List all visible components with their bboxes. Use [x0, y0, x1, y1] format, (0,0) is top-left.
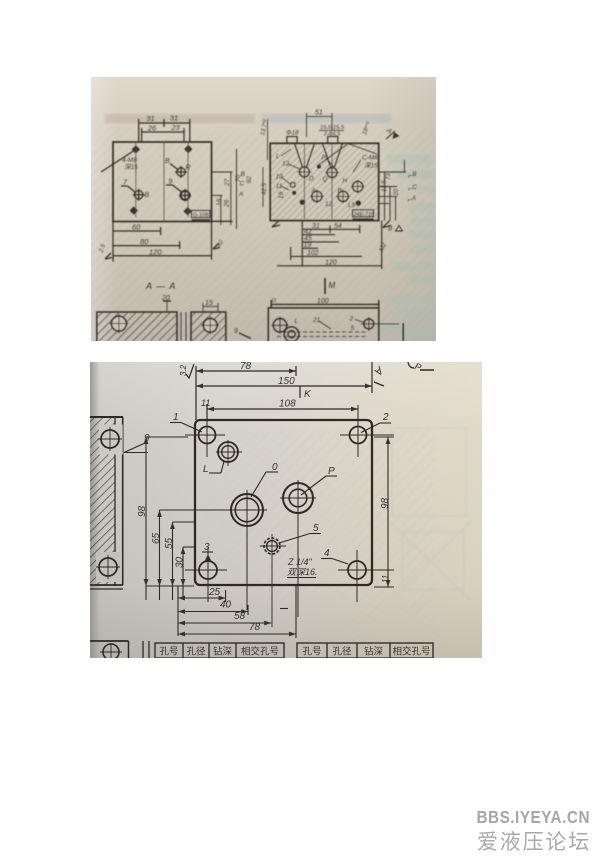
svg-text:31: 31 — [312, 223, 320, 230]
svg-text:51: 51 — [315, 110, 323, 117]
svg-text:73: 73 — [386, 173, 392, 180]
svg-text:B: B — [338, 188, 343, 195]
svg-text:92: 92 — [246, 176, 253, 184]
svg-text:0: 0 — [272, 462, 278, 473]
svg-text:58: 58 — [234, 611, 246, 622]
svg-text:钻深: 钻深 — [364, 646, 384, 658]
svg-text:Z 1/4": Z 1/4" — [287, 557, 313, 567]
svg-text:80: 80 — [140, 237, 149, 246]
svg-text:B: B — [241, 171, 246, 178]
svg-text:3: 3 — [204, 542, 210, 553]
svg-text:深15: 深15 — [124, 163, 138, 171]
svg-text:78: 78 — [249, 622, 261, 633]
svg-text:相交孔号: 相交孔号 — [392, 646, 430, 658]
svg-text:Φ18: Φ18 — [286, 130, 299, 137]
svg-text:21: 21 — [312, 317, 321, 324]
svg-text:L: L — [276, 153, 280, 160]
svg-text:108: 108 — [279, 399, 296, 410]
svg-text:9: 9 — [234, 328, 238, 335]
svg-text:4-M8: 4-M8 — [122, 157, 137, 164]
svg-text:55: 55 — [164, 537, 175, 549]
svg-text:65: 65 — [151, 532, 162, 544]
svg-text:P: P — [322, 155, 327, 162]
svg-text:102: 102 — [307, 250, 319, 257]
svg-text:25: 25 — [208, 587, 221, 598]
svg-text:H: H — [343, 177, 348, 184]
svg-text:20: 20 — [161, 295, 170, 302]
svg-text:15.5|15.5: 15.5|15.5 — [320, 125, 345, 131]
svg-text:M: M — [329, 281, 336, 290]
svg-text:2: 2 — [382, 412, 389, 423]
svg-text:12: 12 — [325, 201, 333, 208]
svg-text:P: P — [328, 466, 335, 477]
svg-text:4: 4 — [324, 548, 330, 559]
svg-text:11: 11 — [271, 298, 277, 304]
svg-text:1: 1 — [173, 412, 179, 423]
svg-text:26: 26 — [147, 124, 157, 133]
svg-text:A — A: A — A — [145, 281, 176, 291]
svg-text:2: 2 — [349, 315, 354, 322]
svg-text:26: 26 — [224, 199, 231, 208]
svg-text:11: 11 — [381, 575, 390, 583]
svg-text:相交孔号: 相交孔号 — [241, 646, 279, 658]
svg-text:150: 150 — [278, 376, 295, 387]
svg-text:120: 120 — [325, 259, 337, 266]
svg-text:27: 27 — [224, 178, 231, 187]
svg-text:R: R — [186, 165, 191, 172]
svg-text:L5: L5 — [348, 202, 356, 209]
svg-text:42: 42 — [304, 228, 312, 235]
svg-text:98: 98 — [137, 505, 148, 517]
svg-text:孔号: 孔号 — [302, 647, 321, 658]
svg-text:G-10B: G-10B — [193, 213, 209, 219]
svg-text:23: 23 — [170, 123, 180, 132]
svg-text:24E-710: 24E-710 — [353, 212, 376, 218]
svg-text:B: B — [388, 226, 393, 233]
svg-text:3.2: 3.2 — [179, 364, 188, 376]
svg-text:C: C — [240, 181, 245, 188]
svg-text:L: L — [203, 464, 209, 475]
svg-text:A: A — [238, 191, 243, 198]
svg-text:40: 40 — [220, 600, 232, 611]
svg-text:78: 78 — [240, 362, 252, 372]
svg-text:钻深: 钻深 — [213, 646, 233, 658]
svg-text:双深16.: 双深16. — [287, 567, 318, 577]
svg-text:D: D — [309, 175, 314, 182]
svg-text:9: 9 — [169, 179, 173, 186]
svg-text:120: 120 — [149, 247, 162, 256]
svg-text:L: L — [295, 318, 299, 325]
svg-text:98: 98 — [380, 497, 391, 509]
svg-text:19: 19 — [304, 242, 312, 249]
svg-text:60: 60 — [132, 223, 141, 232]
svg-text:20: 20 — [394, 188, 400, 196]
svg-text:19: 19 — [278, 191, 285, 199]
svg-text:5: 5 — [351, 325, 355, 332]
svg-text:5: 5 — [313, 523, 319, 534]
svg-text:孔号: 孔号 — [159, 647, 178, 658]
svg-text:100: 100 — [317, 298, 329, 305]
svg-text:42.5: 42.5 — [262, 183, 268, 195]
svg-text:Q: Q — [323, 176, 328, 183]
svg-text:16: 16 — [216, 198, 223, 206]
svg-text:A: A — [311, 188, 316, 195]
svg-text:孔径: 孔径 — [186, 646, 206, 658]
svg-text:2-Φ6.5: 2-Φ6.5 — [323, 132, 340, 138]
svg-text:13.5: 13.5 — [382, 180, 388, 192]
svg-text:C-M6: C-M6 — [362, 155, 378, 162]
svg-text:深15: 深15 — [364, 162, 378, 170]
svg-text:11: 11 — [201, 398, 210, 408]
svg-text:B: B — [145, 192, 150, 199]
svg-text:30: 30 — [175, 556, 186, 568]
svg-text:54: 54 — [334, 223, 342, 230]
svg-text:B: B — [165, 158, 170, 165]
svg-text:孔径: 孔径 — [332, 646, 352, 658]
svg-text:31: 31 — [170, 114, 178, 123]
svg-text:31: 31 — [146, 114, 154, 123]
svg-text:15: 15 — [205, 300, 213, 307]
